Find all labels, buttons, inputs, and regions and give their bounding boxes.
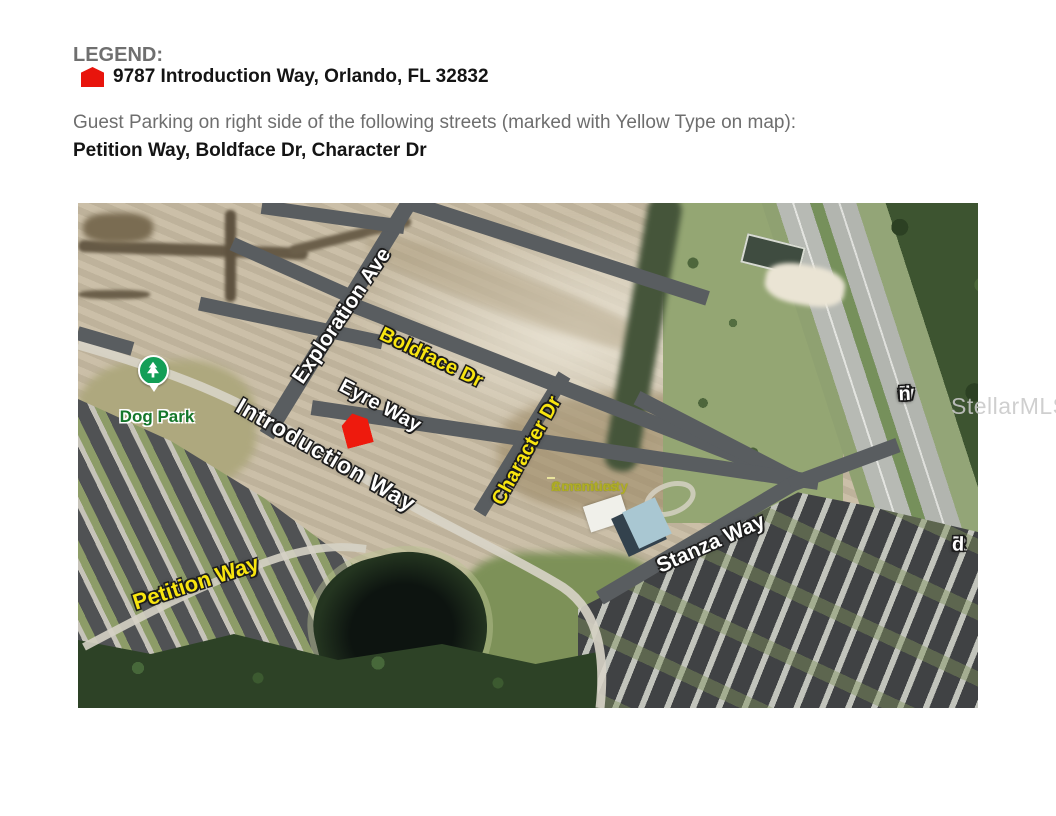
stellar-mls-watermark: StellarMLS [951,393,1056,420]
dog-park-pin-tail [148,383,160,392]
red-house-icon [81,67,104,87]
page: LEGEND: 9787 Introduction Way, Orlando, … [0,0,1056,816]
tree-icon [145,361,161,379]
stacked-letter: n [898,380,911,409]
satellite-map: Exploration Ave Boldface Dr Eyre Way Int… [78,203,978,708]
guest-parking-streets: Petition Way, Boldface Dr, Character Dr [73,140,427,162]
legend-address-row: 9787 Introduction Way, Orlando, FL 32832 [81,66,489,88]
guest-parking-note: Guest Parking on right side of the follo… [73,112,796,134]
stacked-letter: d [952,530,965,559]
community-amenities-label: Community Amenities [547,477,555,479]
legend-title: LEGEND: [73,44,163,67]
legend-address: 9787 Introduction Way, Orlando, FL 32832 [113,66,489,88]
dog-park-pin-circle [138,355,169,386]
dog-park-pin [138,355,165,393]
community-amenities-line2: Amenities [551,478,618,494]
dog-park-label: Dog Park [120,407,195,427]
